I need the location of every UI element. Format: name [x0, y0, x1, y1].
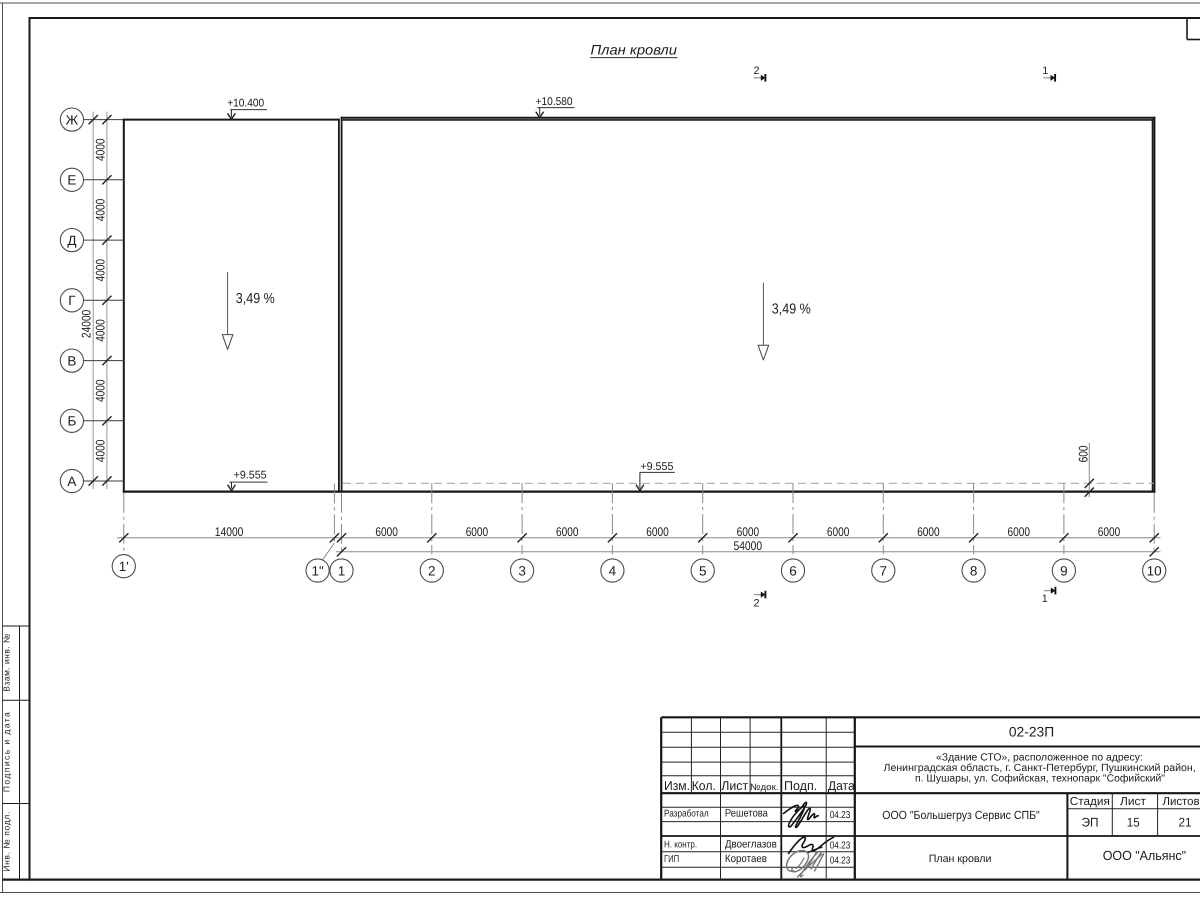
- svg-text:4000: 4000: [93, 379, 107, 402]
- svg-text:1": 1": [311, 563, 324, 578]
- svg-text:6000: 6000: [1008, 525, 1031, 539]
- svg-text:6000: 6000: [737, 525, 760, 539]
- svg-text:600: 600: [1076, 445, 1090, 462]
- svg-text:6000: 6000: [917, 525, 940, 539]
- svg-text:6000: 6000: [827, 525, 850, 539]
- svg-text:6000: 6000: [646, 525, 669, 539]
- svg-text:ООО "Альянс": ООО "Альянс": [1103, 848, 1187, 863]
- svg-text:Ж: Ж: [66, 112, 79, 127]
- svg-text:Взам. инв. №: Взам. инв. №: [1, 634, 11, 692]
- svg-text:4000: 4000: [93, 319, 107, 342]
- svg-text:02-23П: 02-23П: [1009, 724, 1054, 739]
- svg-text:Дата: Дата: [828, 778, 856, 793]
- svg-text:ЭП: ЭП: [1082, 816, 1099, 830]
- svg-text:1: 1: [1042, 593, 1048, 605]
- svg-text:4000: 4000: [93, 199, 107, 222]
- svg-text:1': 1': [119, 559, 129, 574]
- svg-text:ГИП: ГИП: [664, 854, 679, 865]
- svg-text:6000: 6000: [375, 525, 398, 539]
- svg-text:+9.555: +9.555: [234, 470, 267, 482]
- svg-text:Коротаев: Коротаев: [725, 853, 767, 865]
- svg-text:Лист: Лист: [1120, 795, 1147, 808]
- svg-text:ООО "Большегруз Сервис СПБ": ООО "Большегруз Сервис СПБ": [882, 808, 1040, 822]
- svg-text:04.23: 04.23: [830, 855, 851, 866]
- svg-text:2: 2: [753, 65, 759, 77]
- svg-text:15: 15: [1127, 816, 1140, 830]
- svg-text:п. Шушары, ул. Софийская, техн: п. Шушары, ул. Софийская, технопарк "Соф…: [915, 774, 1165, 785]
- svg-text:6: 6: [789, 563, 797, 578]
- svg-text:21: 21: [1179, 816, 1192, 830]
- svg-text:14000: 14000: [215, 525, 244, 539]
- svg-text:Изм.: Изм.: [664, 778, 690, 793]
- svg-text:+10.580: +10.580: [536, 96, 573, 108]
- svg-text:Двоеглазов: Двоеглазов: [725, 838, 777, 850]
- svg-text:1: 1: [1042, 65, 1048, 77]
- svg-text:Подп.: Подп.: [784, 778, 817, 793]
- svg-text:+9.555: +9.555: [640, 461, 673, 473]
- svg-text:№док.: №док.: [750, 782, 779, 792]
- svg-text:10: 10: [1147, 563, 1162, 578]
- svg-text:6000: 6000: [1098, 525, 1121, 539]
- svg-text:4000: 4000: [93, 440, 107, 463]
- svg-text:Н. контр.: Н. контр.: [664, 839, 697, 850]
- svg-text:4000: 4000: [93, 259, 107, 282]
- svg-text:План кровли: План кровли: [591, 42, 678, 57]
- svg-text:А: А: [67, 474, 76, 489]
- svg-text:4000: 4000: [93, 138, 107, 161]
- svg-text:24000: 24000: [79, 310, 93, 338]
- svg-text:5: 5: [699, 563, 707, 578]
- svg-text:Кол.: Кол.: [692, 778, 716, 793]
- svg-text:В: В: [67, 353, 76, 368]
- svg-text:Ленинградская область, г. Санк: Ленинградская область, г. Санкт-Петербур…: [884, 763, 1196, 774]
- svg-text:Лист: Лист: [721, 778, 748, 793]
- svg-text:2: 2: [753, 597, 759, 609]
- svg-text:Б: Б: [67, 414, 76, 429]
- svg-text:1: 1: [338, 563, 346, 578]
- svg-text:9: 9: [1060, 563, 1068, 578]
- svg-text:3,49 %: 3,49 %: [772, 302, 811, 318]
- svg-text:6000: 6000: [466, 525, 489, 539]
- svg-text:54000: 54000: [734, 539, 763, 553]
- svg-text:Подпись и дата: Подпись и дата: [1, 712, 11, 792]
- svg-text:8: 8: [970, 563, 978, 578]
- svg-text:Е: Е: [67, 173, 76, 188]
- svg-text:Инв. № подл.: Инв. № подл.: [1, 812, 11, 872]
- svg-text:3,49 %: 3,49 %: [236, 291, 275, 307]
- svg-text:2: 2: [428, 563, 436, 578]
- svg-text:План кровли: План кровли: [929, 853, 992, 865]
- svg-text:04.23: 04.23: [830, 841, 851, 852]
- svg-text:+10.400: +10.400: [227, 98, 264, 110]
- svg-text:Г: Г: [68, 293, 76, 308]
- svg-text:Стадия: Стадия: [1070, 795, 1110, 808]
- svg-text:4: 4: [609, 563, 617, 578]
- svg-text:3: 3: [518, 563, 526, 578]
- svg-text:Разработал: Разработал: [664, 808, 709, 819]
- svg-text:Решетова: Решетова: [725, 808, 768, 820]
- svg-text:Д: Д: [67, 233, 76, 248]
- svg-text:04.23: 04.23: [830, 810, 851, 821]
- svg-text:Листов: Листов: [1163, 795, 1200, 808]
- svg-text:7: 7: [880, 563, 888, 578]
- svg-text:6000: 6000: [556, 525, 579, 539]
- svg-text:«Здание СТО», расположенное по: «Здание СТО», расположенное по адресу:: [936, 753, 1143, 764]
